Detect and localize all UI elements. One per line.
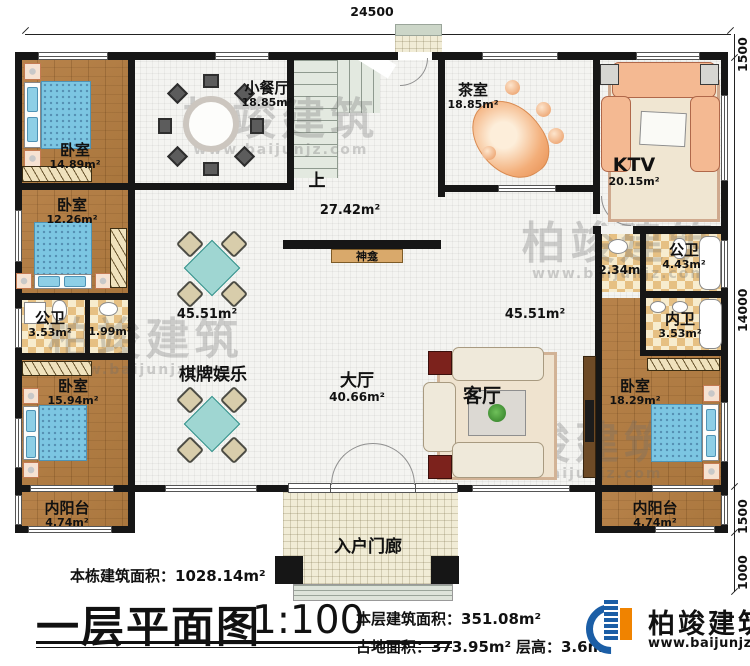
room-label-hall: 大厅 40.66m² [320,372,394,404]
dining-chair [250,118,264,134]
building-total-area: 本栋建筑面积：1028.14m² [70,565,266,586]
bed [41,81,91,149]
window [472,485,570,492]
room-label-bath-left: 公卫 3.53m² [18,310,82,339]
pillow [38,276,60,287]
pillow [27,87,38,112]
side-table [428,351,452,375]
pillow [706,409,716,431]
wall-tea-left [438,52,445,197]
room-label-bath-inner: 内卫 3.53m² [648,311,712,340]
living-sofa [452,347,544,381]
tea-stone [548,128,564,144]
pillow [26,436,36,458]
room-label-bedroom-tl: 卧室 14.89m² [40,142,110,171]
window [38,52,108,60]
window [15,210,22,262]
living-sofa [452,442,544,478]
pillow [64,276,86,287]
area-label-upper: 27.42m² [318,204,382,219]
room-label-dining: 小餐厅 18.85m² [228,80,306,109]
dimension-right-main: 14000 [735,268,750,332]
shrine-shelf: 神龛 [331,249,403,263]
window [15,418,22,468]
pillow [706,435,716,457]
room-label-balcony-right: 内阳台 4.74m² [616,500,694,529]
room-label-bath-left-vestibule: 1.99m² [88,326,132,338]
basin [99,302,118,316]
plan-title: 一层平面图 [36,593,261,655]
window [721,95,728,181]
dimension-right-bottom: 1000 [735,544,750,590]
ktv-sofa [690,96,720,172]
shrine-label: 神龛 [356,250,378,263]
company-logo-icon [586,596,644,660]
logo-building-blue [604,600,618,640]
tea-stone [536,102,551,117]
nightstand [24,150,41,167]
bed [39,405,87,461]
wall-bedroom1-divider [15,183,294,190]
room-label-balcony-left: 内阳台 4.74m² [28,500,106,529]
entry-door-mullion [415,483,416,493]
pillow [26,410,36,432]
room-label-tea: 茶室 18.85m² [434,82,512,111]
dimension-line-top [25,34,731,35]
bed [34,222,92,276]
room-label-bedroom-ml: 卧室 12.26m² [37,197,107,226]
dimension-right-top: 1500 [735,26,750,72]
stairs-up-label: 上 [300,172,334,191]
nightstand [95,273,111,289]
ktv-speaker [700,64,719,85]
room-label-bedroom-r: 卧室 18.29m² [600,378,670,407]
logo-building-orange [620,608,632,640]
porch-column [275,556,303,584]
room-label-living: 客厅 [450,386,514,407]
dining-chair [158,118,172,134]
dimension-tick [22,27,29,34]
room-label-games: 棋牌娱乐 [170,366,256,385]
area-label-right: 45.51m² [500,308,570,323]
dining-chair [203,74,219,88]
nightstand [703,385,720,402]
room-label-bath-right: 公卫 4.43m² [652,242,716,271]
window [721,495,728,525]
window [215,52,269,60]
nightstand [24,63,41,80]
wall-tea-bottom-a [438,185,500,192]
wall-bath-left-divider [15,353,135,360]
wardrobe [22,361,92,376]
dimension-tick [727,27,734,34]
nightstand [16,273,32,289]
window [30,485,114,492]
company-logo-url: www.baijunjz.com [648,636,750,651]
room-label-porch: 入户门廊 [318,538,418,557]
room-label-bath-right-vestibule: 2.34m² [598,264,646,277]
nightstand [703,463,720,480]
area-label-left: 45.51m² [172,308,242,323]
nightstand [23,388,39,404]
window [721,240,728,288]
wall-bath-inner-bottom [640,350,728,356]
floor-plan-canvas: 24500 1500 14000 1500 1000 柏竣建筑 www.baij… [0,0,750,666]
window [721,402,728,462]
wardrobe [110,228,127,288]
basin [608,239,628,254]
window [165,485,257,492]
nightstand [23,462,39,478]
stairs-flight [291,60,338,178]
bed [651,404,702,462]
wall-bedroom2-divider [15,293,135,300]
ktv-door-gap [601,226,633,234]
room-label-ktv: KTV 20.15m² [600,155,668,189]
wall-shrine [283,240,441,249]
wall-tea-ktv [593,52,600,214]
side-table [428,455,452,479]
wall-dining-stair [287,52,294,190]
tv [585,400,594,442]
dimension-right-lower: 1500 [735,490,750,534]
pillow [27,117,38,142]
dimension-top: 24500 [322,4,422,19]
porch-column [431,556,459,584]
site-area-text: 占地面积：373.95m² [356,636,511,657]
tea-stone [482,146,496,160]
ktv-table [639,111,687,147]
wardrobe [647,358,720,371]
room-label-bedroom-bl: 卧室 15.94m² [38,378,108,407]
rear-step [395,24,442,36]
dining-chair [203,162,219,176]
window [652,485,714,492]
wall-bath-inner-left [640,298,646,353]
floor-area-text: 本层建筑面积：351.08m² [356,608,541,629]
window [636,52,700,60]
window [482,52,558,60]
wall-bath-right-bottom [640,291,728,298]
window [15,495,22,525]
tea-opening [498,185,556,192]
plan-scale: 1:100 [252,598,364,643]
ktv-speaker [600,64,619,85]
wall-top [15,52,728,60]
